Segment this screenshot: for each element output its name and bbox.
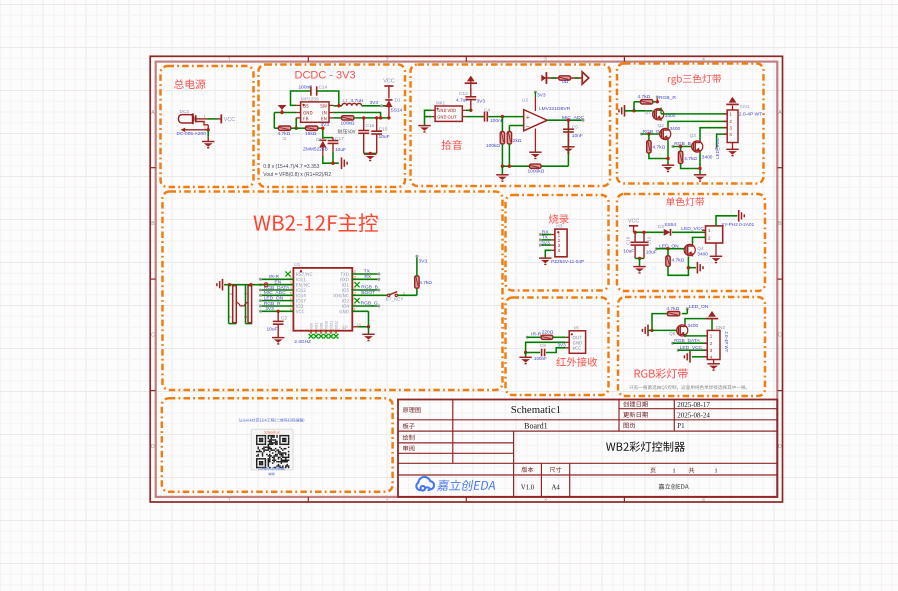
svg-text:100nF: 100nF (490, 118, 504, 124)
svg-text:VCC: VCC (383, 78, 394, 84)
svg-text:4.7kΩ: 4.7kΩ (667, 306, 680, 312)
svg-text:4.7kΩ: 4.7kΩ (638, 94, 651, 100)
svg-text:LED_ON: LED_ON (689, 304, 709, 310)
svg-text:C9: C9 (540, 343, 546, 349)
svg-text:MIC_ADC: MIC_ADC (264, 290, 286, 296)
svg-text:IO20: IO20 (325, 321, 329, 329)
svg-text:C14: C14 (319, 85, 328, 91)
svg-text:3V3: 3V3 (419, 259, 428, 265)
svg-text:U2: U2 (522, 97, 528, 103)
svg-text:10uF: 10uF (379, 134, 390, 140)
svg-text:MIC_ADC: MIC_ADC (562, 115, 584, 121)
svg-text:3: 3 (544, 57, 547, 63)
svg-text:ZMM5226B: ZMM5226B (303, 147, 328, 153)
svg-text:2025-08-17: 2025-08-17 (677, 401, 710, 409)
svg-text:3400: 3400 (702, 155, 713, 161)
svg-text:C16: C16 (366, 123, 375, 129)
svg-text:CN1: CN1 (740, 104, 750, 110)
svg-text:C18: C18 (626, 236, 631, 245)
svg-text:10nF: 10nF (572, 133, 583, 139)
svg-text:IO1: IO1 (315, 323, 319, 329)
svg-text:220Ω: 220Ω (542, 330, 554, 336)
svg-text:C5: C5 (572, 125, 578, 131)
svg-text:MK1: MK1 (436, 101, 446, 106)
svg-text:100nF: 100nF (534, 356, 547, 361)
svg-text:4.7uH: 4.7uH (351, 98, 364, 104)
svg-text:3V3: 3V3 (537, 92, 546, 98)
svg-text:TX: TX (364, 269, 371, 275)
svg-text:Q5: Q5 (669, 331, 676, 337)
svg-text:3V3: 3V3 (541, 240, 550, 246)
svg-text:1: 1 (228, 498, 231, 504)
svg-text:Q3: Q3 (690, 133, 697, 139)
svg-text:RX: RX (364, 274, 372, 280)
svg-text:10uF: 10uF (646, 249, 657, 255)
svg-text:LMV321DBVR: LMV321DBVR (539, 106, 571, 112)
svg-text:100kΩ: 100kΩ (341, 120, 355, 126)
svg-text:19: 19 (317, 329, 321, 333)
svg-text:1: 1 (204, 115, 206, 119)
svg-text:VCC: VCC (628, 219, 639, 225)
svg-text:2025-08-24: 2025-08-24 (677, 411, 710, 419)
svg-text:0Ω: 0Ω (562, 79, 569, 85)
svg-text:C: C (151, 333, 155, 339)
svg-text:XY-PH2.0-2A01: XY-PH2.0-2A01 (721, 222, 754, 227)
svg-text:Vout = VFB(0.8) x (R1+R2)/R2: Vout = VFB(0.8) x (R1+R2)/R2 (263, 172, 331, 178)
svg-text:BT_KEY: BT_KEY (386, 297, 405, 302)
svg-text:4.7kΩ: 4.7kΩ (653, 145, 666, 151)
svg-text:18: 18 (312, 329, 316, 333)
svg-text:4: 4 (702, 57, 705, 63)
svg-text:RGB_R: RGB_R (659, 95, 676, 101)
svg-text:0.8 x (15+4.7)/4.7 =3.353: 0.8 x (15+4.7)/4.7 =3.353 (263, 164, 319, 170)
svg-text:10uF: 10uF (623, 248, 634, 254)
svg-text:r2: r2 (283, 136, 287, 141)
svg-text:C2: C2 (281, 316, 287, 322)
svg-text:3400: 3400 (670, 126, 681, 132)
svg-text:Schematic1: Schematic1 (511, 404, 561, 416)
svg-text:3400: 3400 (697, 252, 708, 258)
svg-text:IO22: IO22 (335, 321, 339, 329)
svg-text:CN2: CN2 (716, 325, 726, 331)
svg-text:D: D (778, 444, 782, 450)
svg-text:2.0-4P WT: 2.0-4P WT (739, 111, 762, 117)
svg-text:DCDC - 3V3: DCDC - 3V3 (295, 70, 356, 82)
svg-text:3V3: 3V3 (265, 306, 274, 312)
svg-text:10uF: 10uF (335, 147, 346, 153)
svg-text:C4: C4 (484, 108, 490, 114)
svg-text:4.7kΩ: 4.7kΩ (419, 280, 432, 286)
svg-text:C19: C19 (647, 236, 652, 245)
svg-text:D: D (151, 444, 155, 450)
svg-text:2: 2 (204, 121, 206, 125)
svg-text:7: 7 (229, 316, 233, 318)
svg-text:Board1: Board1 (524, 422, 548, 431)
svg-text:LED_VCC: LED_VCC (681, 226, 704, 232)
svg-text:Q2: Q2 (658, 123, 665, 129)
svg-text:1: 1 (714, 468, 717, 475)
svg-text:21: 21 (327, 329, 331, 333)
svg-text:3: 3 (204, 126, 206, 130)
svg-text:Q1: Q1 (645, 110, 652, 116)
svg-text:SS54: SS54 (664, 222, 676, 228)
svg-text:22: 22 (332, 329, 336, 333)
svg-text:RX: RX (542, 230, 550, 236)
svg-text:DC-005-A200: DC-005-A200 (177, 131, 207, 137)
svg-text:3400: 3400 (688, 323, 699, 329)
svg-text:IO21: IO21 (330, 321, 334, 329)
svg-text:TX: TX (542, 235, 549, 241)
svg-text:10uF: 10uF (267, 326, 278, 332)
svg-text:2: 2 (386, 57, 389, 63)
svg-text:SS14: SS14 (391, 108, 403, 114)
svg-text:4.7uF: 4.7uF (456, 98, 468, 104)
svg-text:3V3: 3V3 (370, 100, 379, 106)
svg-text:2.0-4P WT: 2.0-4P WT (724, 331, 729, 352)
svg-text:D1: D1 (395, 98, 401, 104)
svg-text:C17: C17 (335, 136, 344, 142)
svg-text:LED_ON: LED_ON (264, 295, 284, 301)
svg-text:2: 2 (229, 293, 233, 295)
svg-text:V1.0: V1.0 (521, 484, 535, 491)
svg-text:P1: P1 (677, 422, 685, 430)
svg-text:L1: L1 (343, 98, 349, 104)
svg-text:4.7kΩ: 4.7kΩ (672, 257, 685, 263)
svg-text:100nF: 100nF (299, 85, 313, 91)
svg-text:+: + (526, 114, 530, 121)
svg-text:Q4: Q4 (697, 246, 704, 252)
svg-text:1: 1 (228, 57, 231, 63)
svg-text:IO0: IO0 (310, 323, 314, 329)
svg-text:2kΩ: 2kΩ (513, 138, 522, 144)
svg-text:1000kΩ: 1000kΩ (528, 169, 545, 175)
svg-text:3V3: 3V3 (558, 342, 567, 347)
svg-text:C13: C13 (459, 91, 468, 97)
svg-text:D3: D3 (316, 137, 322, 142)
svg-text:17: 17 (307, 329, 311, 333)
svg-text:VCC: VCC (224, 117, 235, 123)
svg-text:C: C (778, 333, 782, 339)
svg-text:3: 3 (544, 498, 547, 504)
svg-text:IR-R: IR-R (269, 274, 280, 280)
svg-text:4: 4 (244, 293, 248, 295)
svg-text:−: − (526, 124, 530, 131)
svg-text:LED_VCC: LED_VCC (715, 137, 720, 159)
svg-text:A4: A4 (551, 484, 560, 491)
svg-text:4.7kΩ: 4.7kΩ (684, 156, 697, 162)
svg-text:PZ254V-11-04P: PZ254V-11-04P (551, 259, 584, 264)
svg-text:15kΩ: 15kΩ (305, 131, 317, 137)
svg-text:C15: C15 (379, 126, 388, 132)
svg-text:2: 2 (386, 498, 389, 504)
svg-text:100kΩ: 100kΩ (486, 143, 500, 149)
svg-text:4: 4 (702, 498, 705, 504)
svg-text:2.4GHZ: 2.4GHZ (294, 339, 311, 345)
svg-text:20: 20 (322, 329, 326, 333)
svg-text:8: 8 (244, 316, 248, 318)
svg-text:RGB_R: RGB_R (264, 301, 281, 307)
svg-text:IO8: IO8 (320, 323, 324, 329)
svg-text:3V3: 3V3 (477, 99, 486, 105)
svg-text:1: 1 (672, 468, 675, 475)
